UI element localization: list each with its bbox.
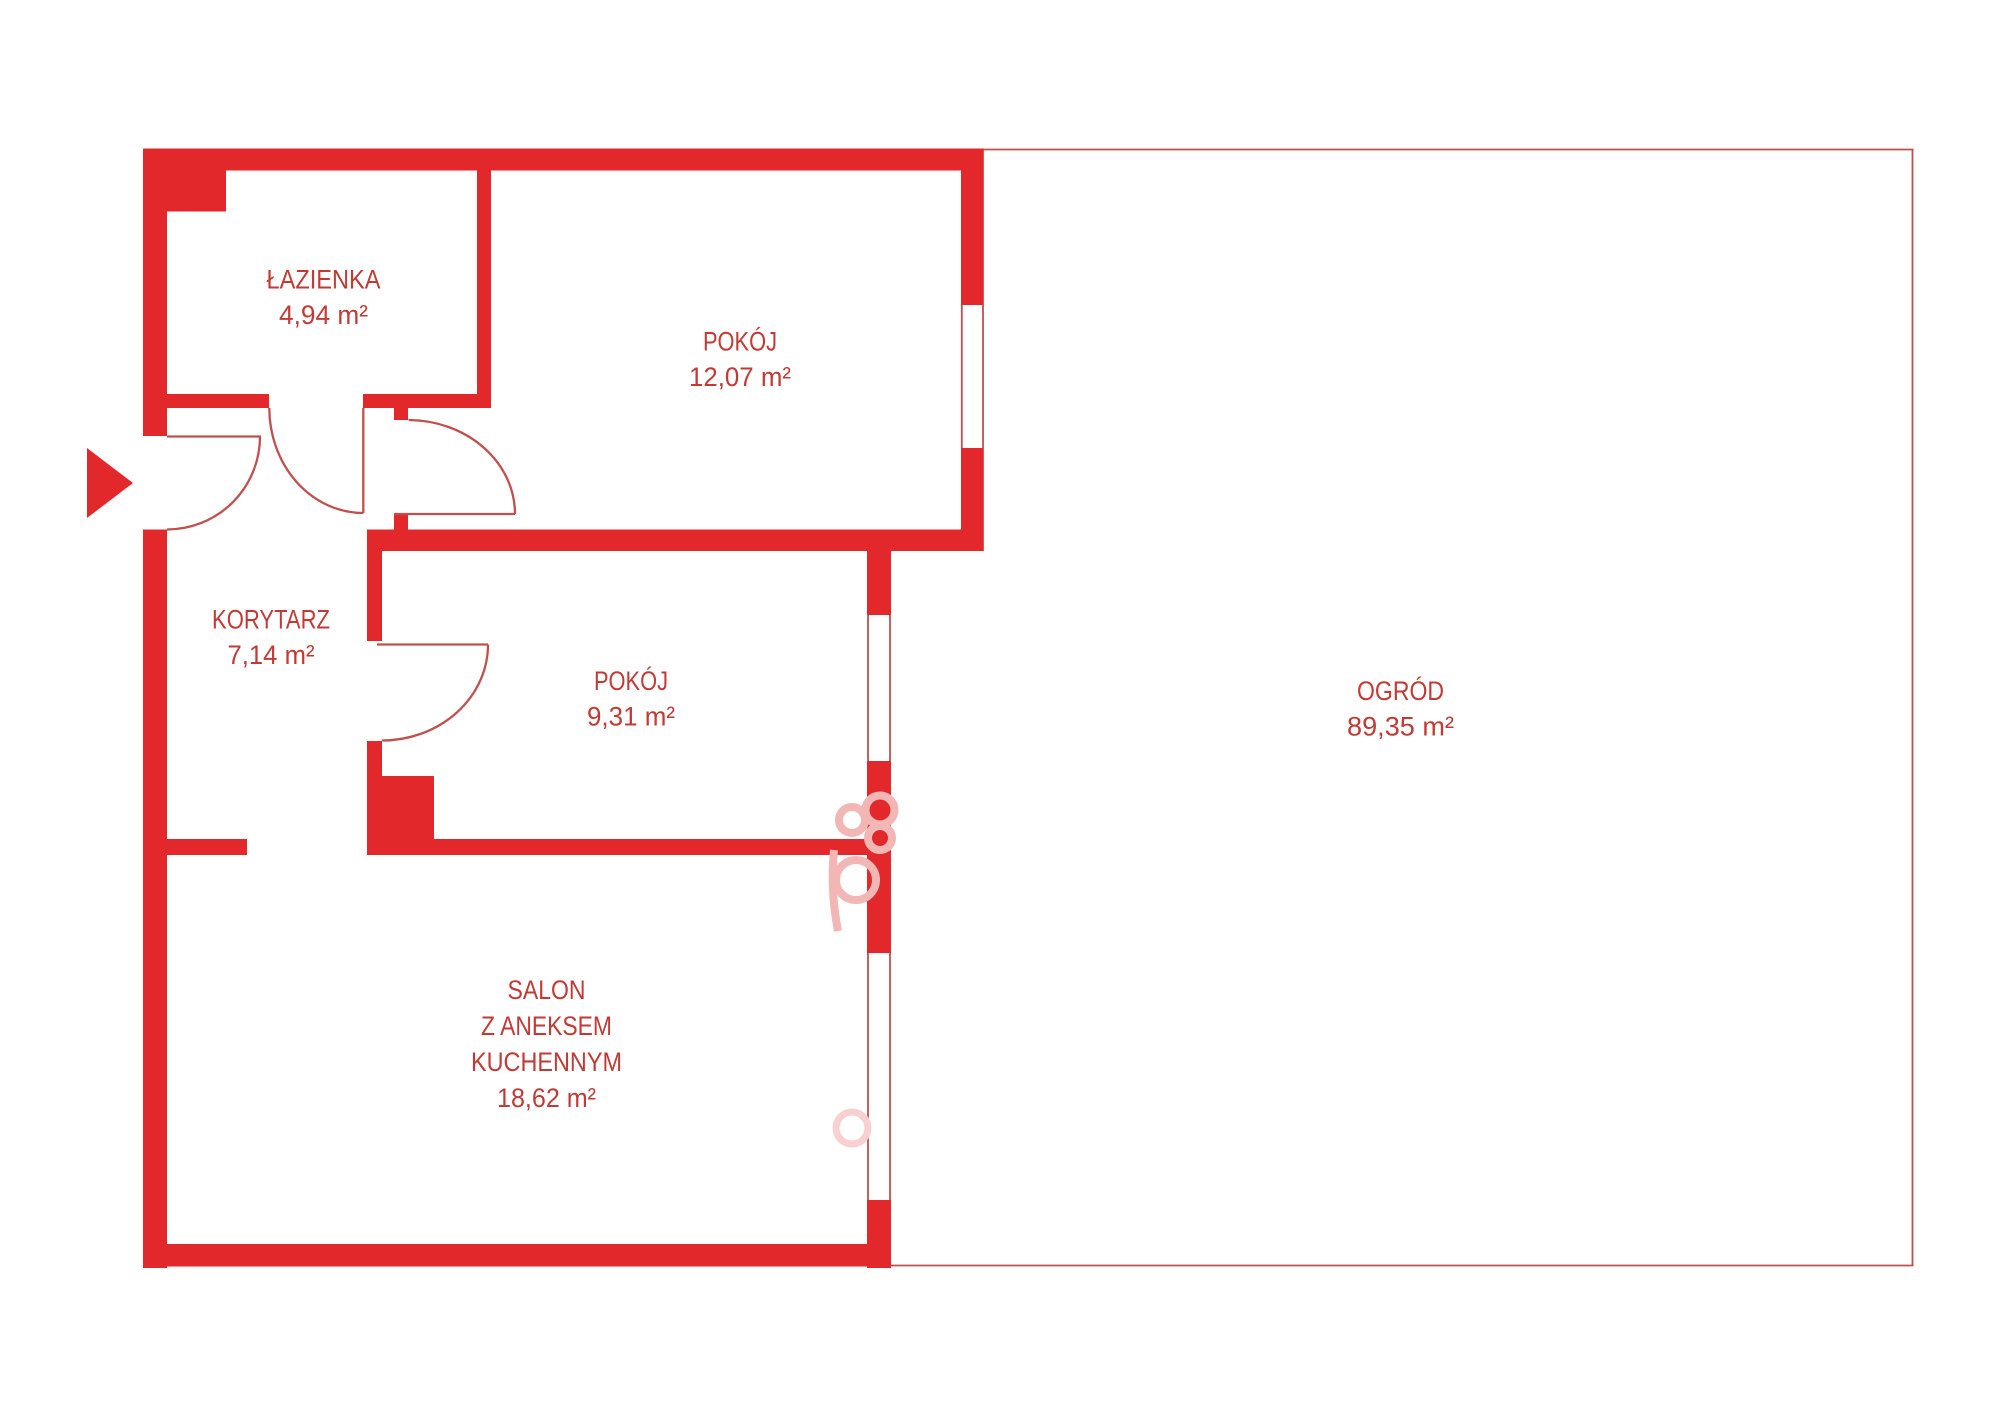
svg-text:4,94 m²: 4,94 m² — [279, 300, 368, 330]
svg-text:SALON: SALON — [508, 975, 586, 1005]
svg-text:18,62 m²: 18,62 m² — [497, 1083, 596, 1113]
svg-text:89,35 m²: 89,35 m² — [1347, 712, 1454, 742]
svg-text:7,14 m²: 7,14 m² — [228, 640, 315, 670]
svg-text:ŁAZIENKA: ŁAZIENKA — [267, 265, 381, 295]
svg-text:OGRÓD: OGRÓD — [1357, 675, 1444, 706]
svg-text:Z ANEKSEM: Z ANEKSEM — [481, 1011, 612, 1041]
svg-text:KORYTARZ: KORYTARZ — [212, 605, 330, 635]
svg-text:12,07 m²: 12,07 m² — [689, 362, 791, 392]
svg-text:9,31 m²: 9,31 m² — [587, 702, 675, 732]
svg-text:POKÓJ: POKÓJ — [703, 326, 777, 357]
svg-text:POKÓJ: POKÓJ — [594, 665, 668, 696]
svg-text:KUCHENNYM: KUCHENNYM — [471, 1047, 622, 1077]
